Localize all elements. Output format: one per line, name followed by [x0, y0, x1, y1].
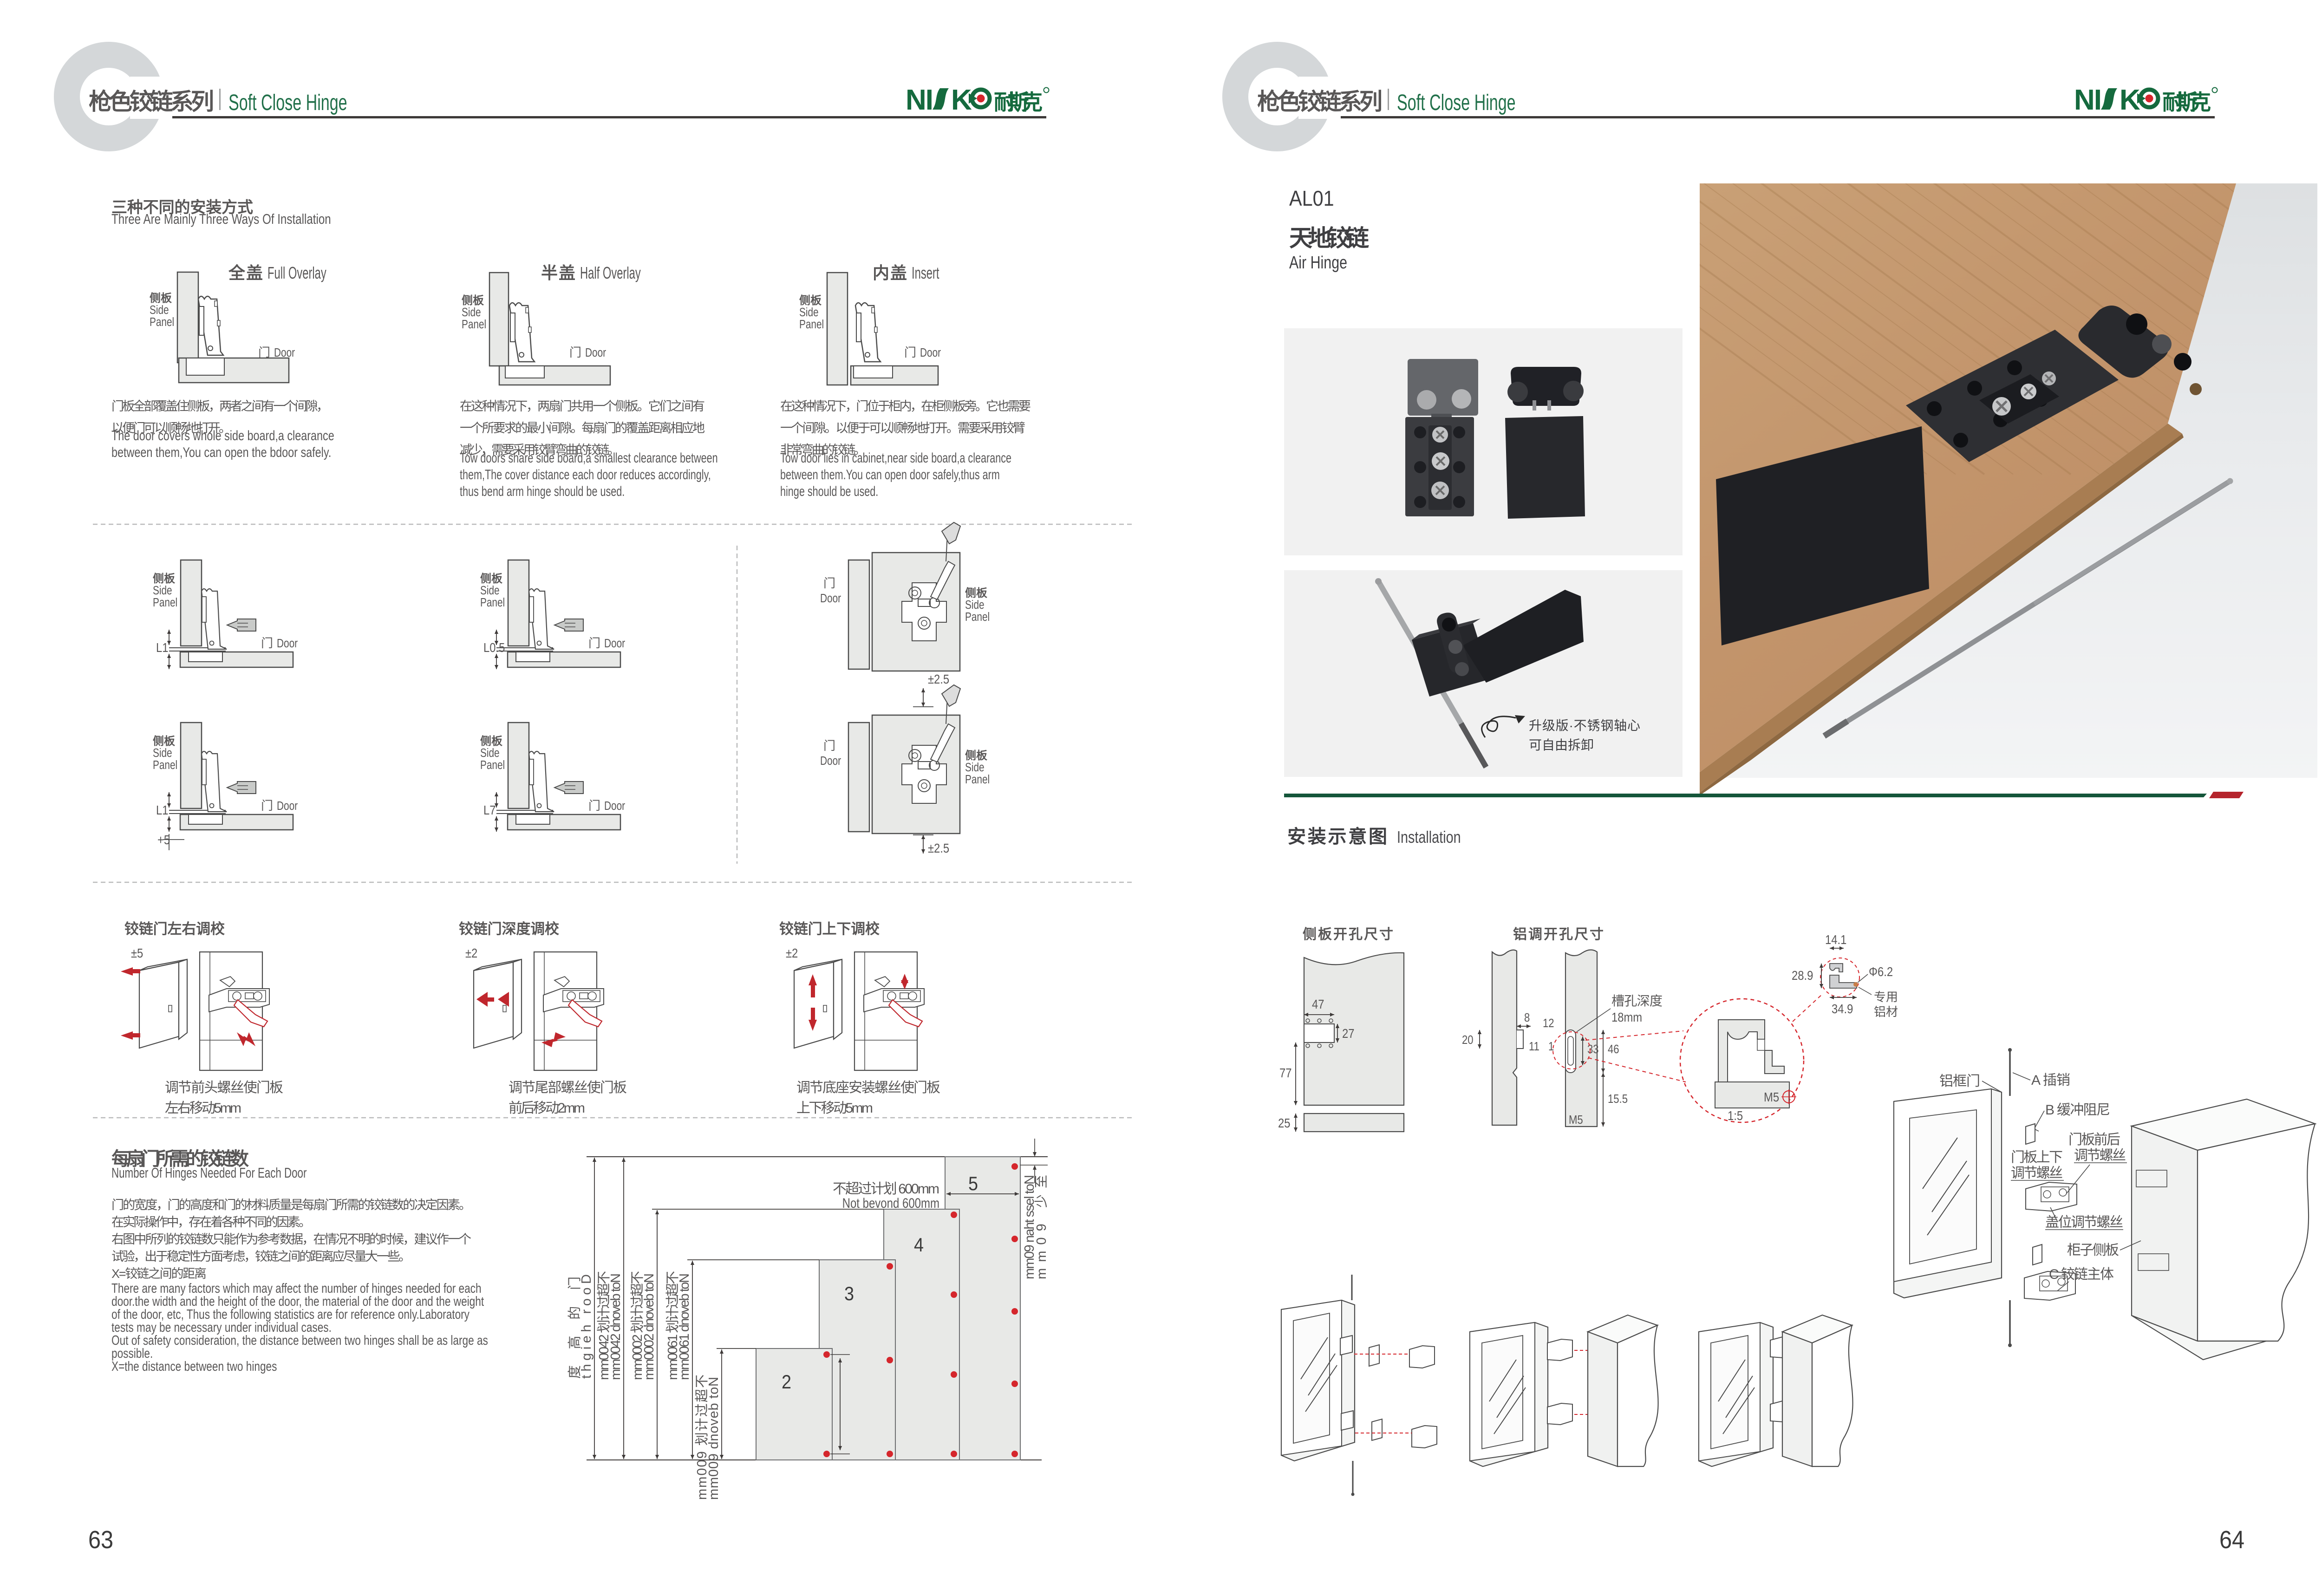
svg-text:Half Overlay: Half Overlay: [580, 264, 641, 282]
svg-text:Side: Side: [153, 584, 172, 597]
svg-text:Side: Side: [480, 584, 500, 597]
svg-text:Side: Side: [480, 746, 500, 760]
svg-text:Side: Side: [150, 303, 169, 317]
svg-text:侧板: 侧板: [965, 586, 988, 599]
svg-text:3: 3: [844, 1283, 854, 1304]
svg-text:Door: Door: [277, 799, 298, 813]
svg-text:调节底座安装螺丝使门板: 调节底座安装螺丝使门板: [796, 1080, 940, 1095]
svg-text:1:5: 1:5: [1728, 1108, 1743, 1123]
svg-text:门板前后: 门板前后: [2068, 1132, 2120, 1147]
svg-text:thus bend arm hinge should be: thus bend arm hinge should be used.: [460, 483, 625, 499]
svg-text:Panel: Panel: [965, 773, 990, 786]
svg-text:Door: Door: [604, 799, 625, 813]
svg-text:Panel: Panel: [799, 318, 824, 331]
svg-text:C 铰链主体: C 铰链主体: [2049, 1267, 2114, 1282]
svg-text:mm0061 dnoveb toN: mm0061 dnoveb toN: [677, 1273, 692, 1380]
svg-text:14.1: 14.1: [1825, 932, 1846, 947]
svg-text:±5: ±5: [131, 945, 143, 960]
svg-text:门: 门: [569, 345, 581, 359]
svg-text:Door: Door: [820, 592, 841, 605]
svg-text:侧板: 侧板: [462, 294, 484, 307]
svg-text:Three Are Mainly Three Ways Of: Three Are Mainly Three Ways Of Installat…: [111, 211, 331, 227]
svg-text:NI: NI: [906, 84, 933, 116]
svg-text:±2: ±2: [465, 945, 477, 960]
svg-text:调节前头螺丝使门板: 调节前头螺丝使门板: [165, 1080, 283, 1095]
svg-text:Air Hinge: Air Hinge: [1289, 253, 1347, 273]
svg-text:4: 4: [914, 1234, 924, 1256]
svg-text:15.5: 15.5: [1608, 1092, 1628, 1106]
svg-text:门: 门: [588, 799, 600, 813]
svg-text:The door covers whole side boa: The door covers whole side board,a clear…: [111, 428, 334, 443]
svg-text:hinge should be used.: hinge should be used.: [780, 483, 878, 499]
svg-text:铝材: 铝材: [1874, 1005, 1898, 1019]
svg-text:Door: Door: [820, 754, 841, 768]
svg-text:Insert: Insert: [912, 264, 939, 282]
svg-text:Full Overlay: Full Overlay: [267, 264, 326, 282]
svg-text:侧板: 侧板: [153, 572, 176, 585]
svg-text:柜子侧板: 柜子侧板: [2067, 1243, 2119, 1258]
svg-text:门: 门: [823, 739, 835, 753]
svg-text:2: 2: [782, 1371, 791, 1393]
svg-text:between them,You can open the: between them,You can open the bdoor safe…: [111, 444, 331, 460]
svg-text:AL01: AL01: [1289, 187, 1334, 211]
svg-text:侧板: 侧板: [480, 735, 503, 748]
svg-text:可自由拆卸: 可自由拆卸: [1529, 738, 1594, 752]
svg-text:mm0042 dnoveb toN: mm0042 dnoveb toN: [608, 1273, 623, 1380]
svg-text:调节尾部螺丝使门板: 调节尾部螺丝使门板: [509, 1080, 627, 1095]
svg-text:47: 47: [1312, 997, 1324, 1011]
svg-text:上下移动5mm: 上下移动5mm: [796, 1101, 873, 1116]
svg-text:升级版·不锈钢轴心: 升级版·不锈钢轴心: [1529, 718, 1640, 733]
svg-text:盖位调节螺丝: 盖位调节螺丝: [2045, 1215, 2123, 1230]
svg-text:枪色铰链系列: 枪色铰链系列: [89, 89, 214, 115]
svg-text:L7: L7: [483, 802, 496, 817]
svg-text:34.9: 34.9: [1832, 1001, 1853, 1016]
svg-text:Panel: Panel: [965, 610, 990, 624]
svg-text:them,The cover distance each d: them,The cover distance each door reduce…: [460, 466, 711, 482]
svg-text:mm009 dnoveb toN: mm009 dnoveb toN: [706, 1377, 721, 1500]
svg-text:Not bevond 600mm: Not bevond 600mm: [842, 1195, 939, 1211]
svg-text:内盖: 内盖: [873, 263, 907, 282]
svg-text:Side: Side: [462, 306, 481, 319]
svg-text:Panel: Panel: [480, 596, 505, 609]
svg-text:Door: Door: [277, 637, 298, 650]
svg-text:铰链门上下调校: 铰链门上下调校: [779, 921, 880, 937]
svg-text:M5: M5: [1764, 1089, 1779, 1104]
svg-text:侧板: 侧板: [153, 735, 176, 748]
svg-text:mm0002 dnoveb toN: mm0002 dnoveb toN: [642, 1273, 657, 1380]
svg-text:Side: Side: [153, 746, 172, 760]
svg-text:64: 64: [2219, 1525, 2244, 1554]
svg-text:门: 门: [261, 636, 273, 650]
svg-text:Door: Door: [585, 346, 606, 359]
svg-text:B 缓冲阻尼: B 缓冲阻尼: [2045, 1102, 2110, 1118]
svg-text:A 插销: A 插销: [2031, 1073, 2070, 1088]
svg-text:右图中所列的铰链数只能作为参考数据，在情况不明的时候，建议作: 右图中所列的铰链数只能作为参考数据，在情况不明的时候，建议作一个: [111, 1232, 471, 1246]
svg-text:侧板: 侧板: [150, 292, 172, 305]
svg-text:侧板: 侧板: [965, 749, 988, 762]
svg-text:侧板: 侧板: [480, 572, 503, 585]
svg-text:试验，出于稳定性方面考虑，铰链之间的距离应尽量大一些。: 试验，出于稳定性方面考虑，铰链之间的距离应尽量大一些。: [111, 1250, 411, 1264]
svg-text:安装示意图: 安装示意图: [1287, 827, 1387, 847]
svg-text:门板上下: 门板上下: [2011, 1150, 2063, 1165]
svg-text:Door: Door: [274, 346, 295, 359]
svg-text:Side: Side: [965, 761, 985, 774]
svg-text:18mm: 18mm: [1611, 1010, 1642, 1024]
svg-text:在这种情况下，两扇门共用一个侧板。它们之间有: 在这种情况下，两扇门共用一个侧板。它们之间有: [460, 399, 705, 413]
svg-text:调节螺丝: 调节螺丝: [2011, 1166, 2063, 1181]
svg-text:Out of safety consideration, t: Out of safety consideration, the distanc…: [111, 1332, 488, 1348]
svg-text:调节螺丝: 调节螺丝: [2074, 1148, 2126, 1163]
svg-text:铰链门左右调校: 铰链门左右调校: [124, 921, 225, 937]
svg-text:25: 25: [1278, 1115, 1290, 1130]
svg-text:M5: M5: [1569, 1113, 1583, 1127]
svg-text:NI: NI: [2074, 84, 2101, 116]
svg-text:77: 77: [1279, 1065, 1291, 1080]
svg-text:门: 门: [258, 345, 270, 359]
svg-text:63: 63: [88, 1525, 113, 1554]
svg-text:耐斯克: 耐斯克: [2162, 90, 2211, 114]
svg-text:between them.You can open door: between them.You can open door safely,th…: [780, 466, 1000, 482]
svg-text:Door: Door: [604, 637, 625, 650]
svg-text:一个间隙。以便于可以顺畅地打开。需要采用铰臂: 一个间隙。以便于可以顺畅地打开。需要采用铰臂: [780, 421, 1025, 435]
svg-text:±2.5: ±2.5: [928, 840, 949, 855]
svg-text:门: 门: [588, 636, 600, 650]
svg-text:±2.5: ±2.5: [928, 671, 949, 686]
svg-text:20: 20: [1462, 1033, 1474, 1047]
svg-text:Number Of Hinges Needed For Ea: Number Of Hinges Needed For Each Door: [111, 1165, 307, 1180]
svg-text:门: 门: [261, 799, 273, 813]
svg-text:Door: Door: [920, 346, 941, 359]
svg-text:一个所要求的最小间隙。每扇门的覆盖距离相应地: 一个所要求的最小间隙。每扇门的覆盖距离相应地: [460, 421, 705, 435]
svg-text:5: 5: [968, 1173, 978, 1194]
svg-text:12: 12: [1543, 1016, 1554, 1030]
svg-text:天地铰链: 天地铰链: [1289, 225, 1369, 251]
svg-text:27: 27: [1342, 1026, 1354, 1041]
svg-text:Panel: Panel: [153, 758, 177, 772]
svg-text:L1: L1: [156, 802, 168, 817]
svg-text:Soft Close Hinge: Soft Close Hinge: [1397, 90, 1516, 115]
svg-text:X=铰链之间的距离: X=铰链之间的距离: [111, 1267, 207, 1281]
svg-text:Panel: Panel: [153, 596, 177, 609]
svg-text:半盖: 半盖: [541, 263, 575, 282]
svg-text:28.9: 28.9: [1792, 968, 1813, 983]
svg-text:Tow door lies in cabinet,near: Tow door lies in cabinet,near side board…: [780, 449, 1011, 465]
svg-text:耐斯克: 耐斯克: [994, 90, 1043, 114]
svg-text:铰链门深度调校: 铰链门深度调校: [459, 921, 559, 937]
svg-text:Installation: Installation: [1397, 827, 1461, 847]
svg-text:槽孔深度: 槽孔深度: [1611, 994, 1663, 1008]
svg-text:前后移动2mm: 前后移动2mm: [509, 1101, 585, 1116]
svg-text:在这种情况下，门位于柜内，在柜侧板旁。它也需要: 在这种情况下，门位于柜内，在柜侧板旁。它也需要: [780, 399, 1031, 413]
svg-text:Soft Close Hinge: Soft Close Hinge: [228, 90, 347, 115]
svg-text:L0.5: L0.5: [483, 640, 505, 655]
svg-text:46: 46: [1608, 1042, 1619, 1056]
svg-text:侧板: 侧板: [799, 294, 822, 307]
svg-text:专用: 专用: [1874, 990, 1898, 1004]
svg-text:Side: Side: [965, 598, 985, 612]
svg-text:Side: Side: [799, 306, 819, 319]
svg-text:Tow doors share side board,a s: Tow doors share side board,a smallest cl…: [460, 449, 718, 465]
svg-text:不超过计划 600mm: 不超过计划 600mm: [833, 1181, 939, 1197]
svg-text:Panel: Panel: [150, 315, 174, 329]
svg-text:枪色铰链系列: 枪色铰链系列: [1257, 89, 1383, 115]
svg-text:门: 门: [904, 345, 916, 359]
svg-text:L1: L1: [156, 640, 168, 655]
svg-text:X=the distance between two hin: X=the distance between two hinges: [111, 1358, 277, 1374]
svg-text:Φ6.2: Φ6.2: [1869, 964, 1893, 979]
svg-text:11: 11: [1529, 1040, 1539, 1053]
svg-text:Panel: Panel: [480, 758, 505, 772]
svg-text:门板全部覆盖住侧板，两者之间有一个间隙，: 门板全部覆盖住侧板，两者之间有一个间隙，: [111, 399, 329, 413]
svg-text:8: 8: [1524, 1011, 1530, 1024]
svg-text:铝框门: 铝框门: [1939, 1074, 1980, 1089]
svg-text:门: 门: [823, 576, 835, 590]
svg-text:门的宽度，门的高度和门的材料质量是每扇门所需的铰链数的决定因: 门的宽度，门的高度和门的材料质量是每扇门所需的铰链数的决定因素。: [111, 1198, 471, 1212]
svg-text:±2: ±2: [786, 945, 798, 960]
svg-text:Panel: Panel: [462, 318, 486, 331]
svg-text:左右移动5mm: 左右移动5mm: [165, 1101, 241, 1116]
svg-text:在实际操作中，存在着各种不同的因素。: 在实际操作中，存在着各种不同的因素。: [111, 1215, 311, 1229]
